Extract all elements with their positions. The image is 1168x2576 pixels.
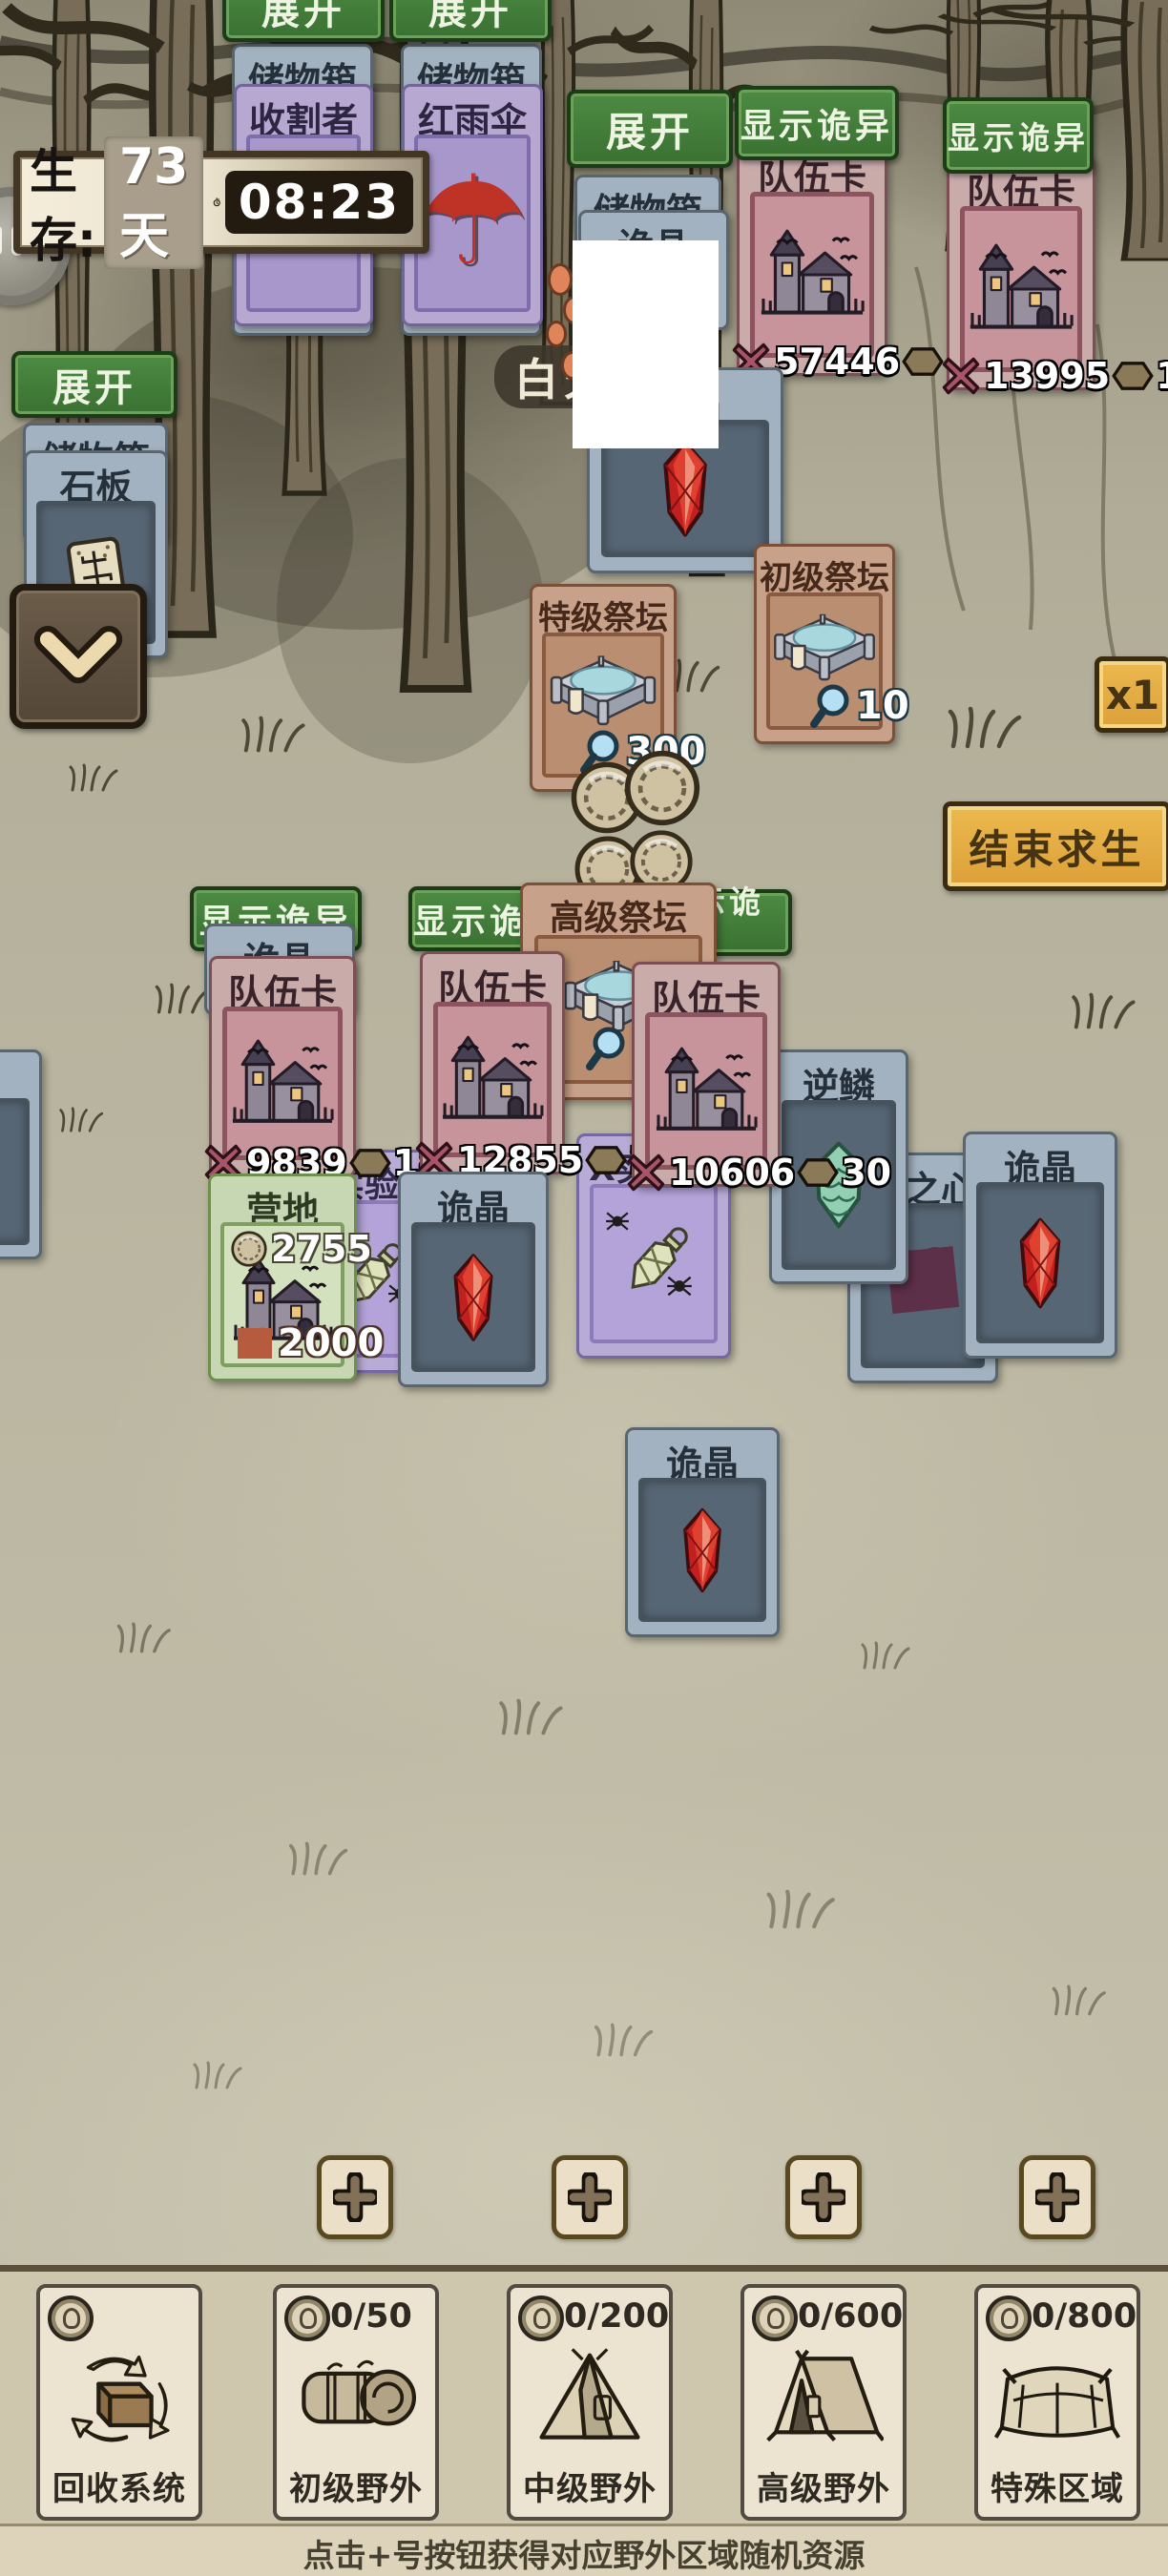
card-art-panel [433,1002,552,1157]
haunted-house-icon [228,1037,337,1131]
slot-count: 0/50 [330,2297,412,2336]
slot-label: 回收系统 [40,2462,198,2509]
slot-mid-wild[interactable]: 0/200 中级野外 [507,2284,673,2521]
card-team-2[interactable]: 队伍卡 13995 183 [947,156,1095,390]
big-tent-icon [993,2350,1121,2443]
add-resource-button-3[interactable] [785,2155,862,2239]
slot-count: 0/800 [1032,2297,1137,2336]
plus-icon [333,2172,377,2222]
haunted-house-icon [756,227,868,322]
haunted-house-icon [439,1033,546,1127]
slot-advanced-wild[interactable]: 0/600 高级野外 [740,2284,907,2521]
card-team-4[interactable]: 队伍卡 12855 24 [420,951,565,1174]
card-camp[interactable]: 营地 2755 2000 [208,1174,357,1381]
slot-recycle-system[interactable]: 回收系统 [36,2284,202,2521]
shield-icon [585,1139,627,1181]
expand-button-left[interactable]: 展开 [11,351,177,418]
shield-icon [797,1152,839,1194]
expand-button-top-2[interactable]: 展开 [389,0,552,42]
add-resource-button-1[interactable] [317,2155,393,2239]
altar-icon [550,655,657,737]
shield-icon [1112,355,1154,397]
spider-icon [605,1209,630,1234]
haunted-house-icon [966,241,1076,337]
card-crystal-4[interactable]: 诡晶 [625,1427,780,1637]
card-art-panel [645,1012,767,1170]
card-art-panel [222,1007,343,1160]
red-crystal-icon [677,1506,728,1594]
slot-special-zone[interactable]: 0/800 特殊区域 [974,2284,1140,2521]
red-crystal-icon [656,439,715,538]
card-title: 特级祭坛 [532,587,674,638]
recycle-box-icon [62,2347,177,2446]
card-art-panel: 2755 2000 [220,1222,344,1367]
coin-badge-icon [752,2296,798,2341]
plus-icon [802,2172,845,2222]
end-survival-button[interactable]: 结束求生 [943,801,1168,891]
card-art-panel [638,1478,766,1622]
add-resource-button-4[interactable] [1019,2155,1095,2239]
coin-icon [622,748,702,828]
plus-icon [1035,2172,1079,2222]
card-title: 初级祭坛 [757,547,892,598]
card-art-panel [750,192,874,358]
card-title: 高级祭坛 [523,885,714,940]
team-stats: 10606 30 [623,1152,891,1194]
defense-value: 30 [841,1152,891,1194]
card-art-panel [411,1222,535,1372]
coin-badge-icon [284,2296,330,2341]
magnifier-icon [806,682,854,730]
coin-badge-icon [518,2296,564,2341]
attack-value: 13995 [984,355,1110,397]
red-crystal-icon [447,1252,500,1343]
coin-badge-icon [48,2296,94,2341]
card-art-panel [960,206,1082,372]
coin-icon [230,1230,268,1268]
teepee-tent-icon [533,2347,646,2446]
haunted-house-icon [652,1045,761,1138]
bottom-hint-text: 点击+号按钮获得对应野外区域随机资源 [0,2524,1168,2576]
heart-icon [238,1328,272,1359]
red-crystal-icon [1012,1216,1068,1310]
attack-value: 57446 [774,341,900,383]
slot-label: 高级野外 [744,2462,903,2509]
clock-time: 08:23 [225,171,413,234]
expand-button-3[interactable]: 展开 [567,90,733,168]
survival-days: 73天 [104,136,203,269]
plus-icon [568,2172,612,2222]
show-weird-button-1[interactable]: 显示诡异 [735,86,899,160]
spider-icon [666,1273,693,1299]
card-crystal-3[interactable]: 诡晶 [963,1132,1117,1359]
defense-value: 183 [1156,355,1168,397]
blank-overlay [573,240,719,448]
speed-multiplier-button[interactable]: x1 [1095,656,1168,733]
coin-badge-icon [986,2296,1032,2341]
magnifier-icon [582,1025,630,1072]
pause-icon [0,225,2,256]
attack-value: 10606 [669,1152,795,1194]
altar-icon [773,614,876,693]
card-primary-altar[interactable]: 初级祭坛 10 [754,544,895,744]
survival-label: 生存: [30,134,96,271]
show-weird-button-2[interactable]: 显示诡异 [943,97,1094,174]
card-team-5[interactable]: 队伍卡 10606 30 [632,962,781,1187]
bedroll-icon [296,2351,416,2442]
card-partial-left[interactable] [0,1049,42,1259]
slot-primary-wild[interactable]: 0/50 初级野外 [273,2284,439,2521]
attack-icon [940,355,982,397]
slot-label: 初级野外 [277,2462,435,2509]
card-team-1[interactable]: 队伍卡 57446 53 [737,141,887,376]
team-stats: 13995 183 [938,355,1168,397]
card-crystal-2[interactable]: 诡晶 [398,1172,549,1387]
camp-coins: 2755 [230,1228,372,1270]
altar-value: 10 [806,682,909,730]
collapse-arrow-button[interactable] [10,584,147,729]
expand-button-top-1[interactable]: 展开 [222,0,385,42]
slot-count: 0/600 [798,2297,903,2336]
card-art-panel [590,1184,718,1343]
umbrella-icon: ☂ [417,158,529,282]
chevron-down-icon [32,625,124,688]
card-art-panel [976,1182,1104,1343]
stopwatch-icon [213,177,220,227]
survival-bar: 生存: 73天 08:23 [13,151,429,254]
card-team-3[interactable]: 队伍卡 9839 18 [209,956,356,1177]
slot-count: 0/200 [564,2297,669,2336]
card-art-panel: ☂ [414,135,531,312]
slot-label: 特殊区域 [978,2462,1137,2509]
camp-hp: 2000 [238,1321,384,1365]
frame-tent-icon [763,2349,884,2444]
game-stage: 储物箱 收割者 储物箱 红雨伞 ☂ 储物箱 诡晶 队伍卡 57446 53 队伍… [0,0,1168,2576]
add-resource-button-2[interactable] [552,2155,628,2239]
slot-label: 中级野外 [511,2462,669,2509]
attack-icon [625,1152,667,1194]
